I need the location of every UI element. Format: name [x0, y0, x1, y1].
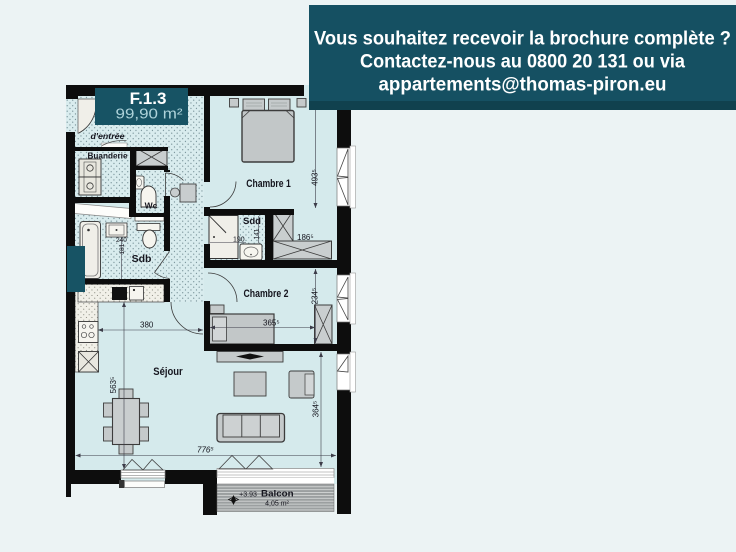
svg-text:240: 240 [116, 237, 127, 244]
svg-text:Sdb: Sdb [132, 253, 152, 265]
svg-text:Contactez-nous au 0800 20 131: Contactez-nous au 0800 20 131 ou via [360, 50, 685, 72]
svg-text:Balcon: Balcon [261, 489, 294, 500]
svg-text:190: 190 [233, 237, 245, 244]
svg-text:Chambre 1: Chambre 1 [246, 178, 291, 190]
svg-text:Sdd: Sdd [243, 216, 261, 227]
svg-text:563⁵: 563⁵ [109, 377, 118, 394]
svg-text:Vous souhaitez recevoir la bro: Vous souhaitez recevoir la brochure comp… [314, 27, 731, 49]
svg-text:380: 380 [140, 321, 154, 330]
svg-text:493⁵: 493⁵ [311, 169, 320, 186]
svg-text:4,05 m²: 4,05 m² [265, 501, 289, 508]
svg-text:186⁵: 186⁵ [297, 233, 314, 242]
svg-text:Wc: Wc [145, 201, 158, 211]
svg-text:F.1.3: F.1.3 [130, 89, 167, 108]
svg-text:141: 141 [254, 228, 261, 239]
svg-text:181: 181 [119, 243, 126, 254]
svg-text:+3.93: +3.93 [239, 492, 257, 499]
svg-text:234⁵: 234⁵ [311, 288, 320, 305]
svg-text:Chambre 2: Chambre 2 [244, 288, 289, 300]
svg-text:776⁵: 776⁵ [197, 446, 214, 455]
svg-text:d'entrée: d'entrée [91, 131, 125, 141]
svg-text:appartements@thomas-piron.eu: appartements@thomas-piron.eu [379, 73, 667, 95]
svg-text:99,90 m²: 99,90 m² [116, 107, 183, 123]
svg-text:364⁵: 364⁵ [312, 401, 321, 418]
svg-text:365⁵: 365⁵ [263, 319, 280, 328]
svg-text:Buanderie: Buanderie [88, 151, 128, 161]
svg-text:Séjour: Séjour [153, 366, 183, 378]
